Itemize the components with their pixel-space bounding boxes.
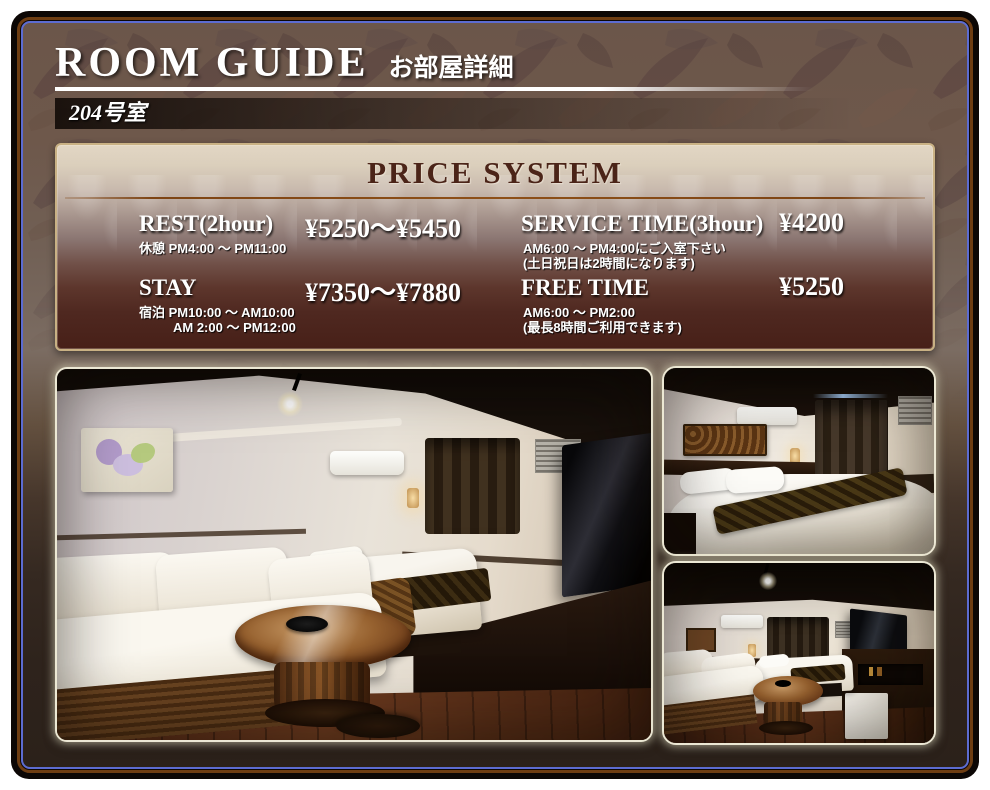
page-subtitle: お部屋詳細 <box>389 55 514 82</box>
room-overview-scene <box>57 369 651 740</box>
ashtray <box>286 616 328 632</box>
air-conditioner <box>737 407 797 425</box>
photo-lounge-view <box>662 561 936 745</box>
price-item-rest-price: ¥5250～¥5450 <box>305 208 461 245</box>
price-item-service-note: AM6:00 ～ PM4:00にご入室下さい (土日祝日は2時間になります) <box>523 241 726 271</box>
photo-room-overview <box>55 367 653 742</box>
lounge-view-scene <box>664 563 934 743</box>
window-glow <box>813 394 889 398</box>
page-content: ROOM GUIDEお部屋詳細 204号室 PRICE SYSTEM REST(… <box>21 21 969 769</box>
price-system-title: PRICE SYSTEM <box>57 155 933 191</box>
curtain <box>815 400 888 484</box>
price-item-rest-note: 休憩 PM4:00 ～ PM11:00 <box>139 241 286 256</box>
bed-view-scene <box>664 368 934 554</box>
price-system-panel: PRICE SYSTEM REST(2hour) ¥5250～¥5450 休憩 … <box>55 143 935 351</box>
wall-lamp <box>407 488 419 508</box>
wall-art <box>686 628 716 652</box>
bottle <box>869 667 873 676</box>
room-guide-page: { "page": { "header": { "title": "ROOM G… <box>0 0 990 790</box>
header-underline <box>55 87 813 91</box>
curtain <box>425 438 520 534</box>
vent-grille <box>898 396 932 425</box>
side-table-shine <box>235 605 411 669</box>
price-item-free-note: AM6:00 ～ PM2:00 (最長8時間ご利用できます) <box>523 305 682 335</box>
nightstand <box>664 513 696 554</box>
fridge <box>845 693 888 740</box>
price-item-service-price: ¥4200 <box>779 208 844 238</box>
tv <box>562 433 653 598</box>
price-item-free-name: FREE TIME <box>521 275 649 301</box>
room-number-bar: 204号室 <box>55 98 923 129</box>
price-item-service-name: SERVICE TIME(3hour) <box>521 211 763 237</box>
price-item-stay-price: ¥7350～¥7880 <box>305 272 461 309</box>
bottle <box>877 667 882 676</box>
page-header: ROOM GUIDEお部屋詳細 <box>55 39 935 87</box>
photo-bed-view <box>662 366 936 556</box>
spotlight <box>277 391 303 417</box>
price-item-stay-note: 宿泊 PM10:00 ～ AM10:00 AM 2:00 ～ PM12:00 <box>139 305 296 335</box>
page-frame: ROOM GUIDEお部屋詳細 204号室 PRICE SYSTEM REST(… <box>11 11 979 779</box>
air-conditioner <box>330 451 404 475</box>
stool <box>336 714 420 738</box>
price-title-divider <box>65 197 925 199</box>
carved-wood-panel <box>683 424 767 456</box>
price-item-stay-name: STAY <box>139 275 197 301</box>
air-conditioner <box>721 615 763 628</box>
price-item-free-price: ¥5250 <box>779 272 844 302</box>
ashtray <box>775 680 791 687</box>
bed-pillow <box>725 466 785 494</box>
page-title: ROOM GUIDE <box>55 40 369 86</box>
price-item-rest-name: REST(2hour) <box>139 211 273 237</box>
cabinet-shelf <box>858 664 923 686</box>
spotlight <box>759 572 777 590</box>
room-number-label: 204号室 <box>55 98 923 128</box>
